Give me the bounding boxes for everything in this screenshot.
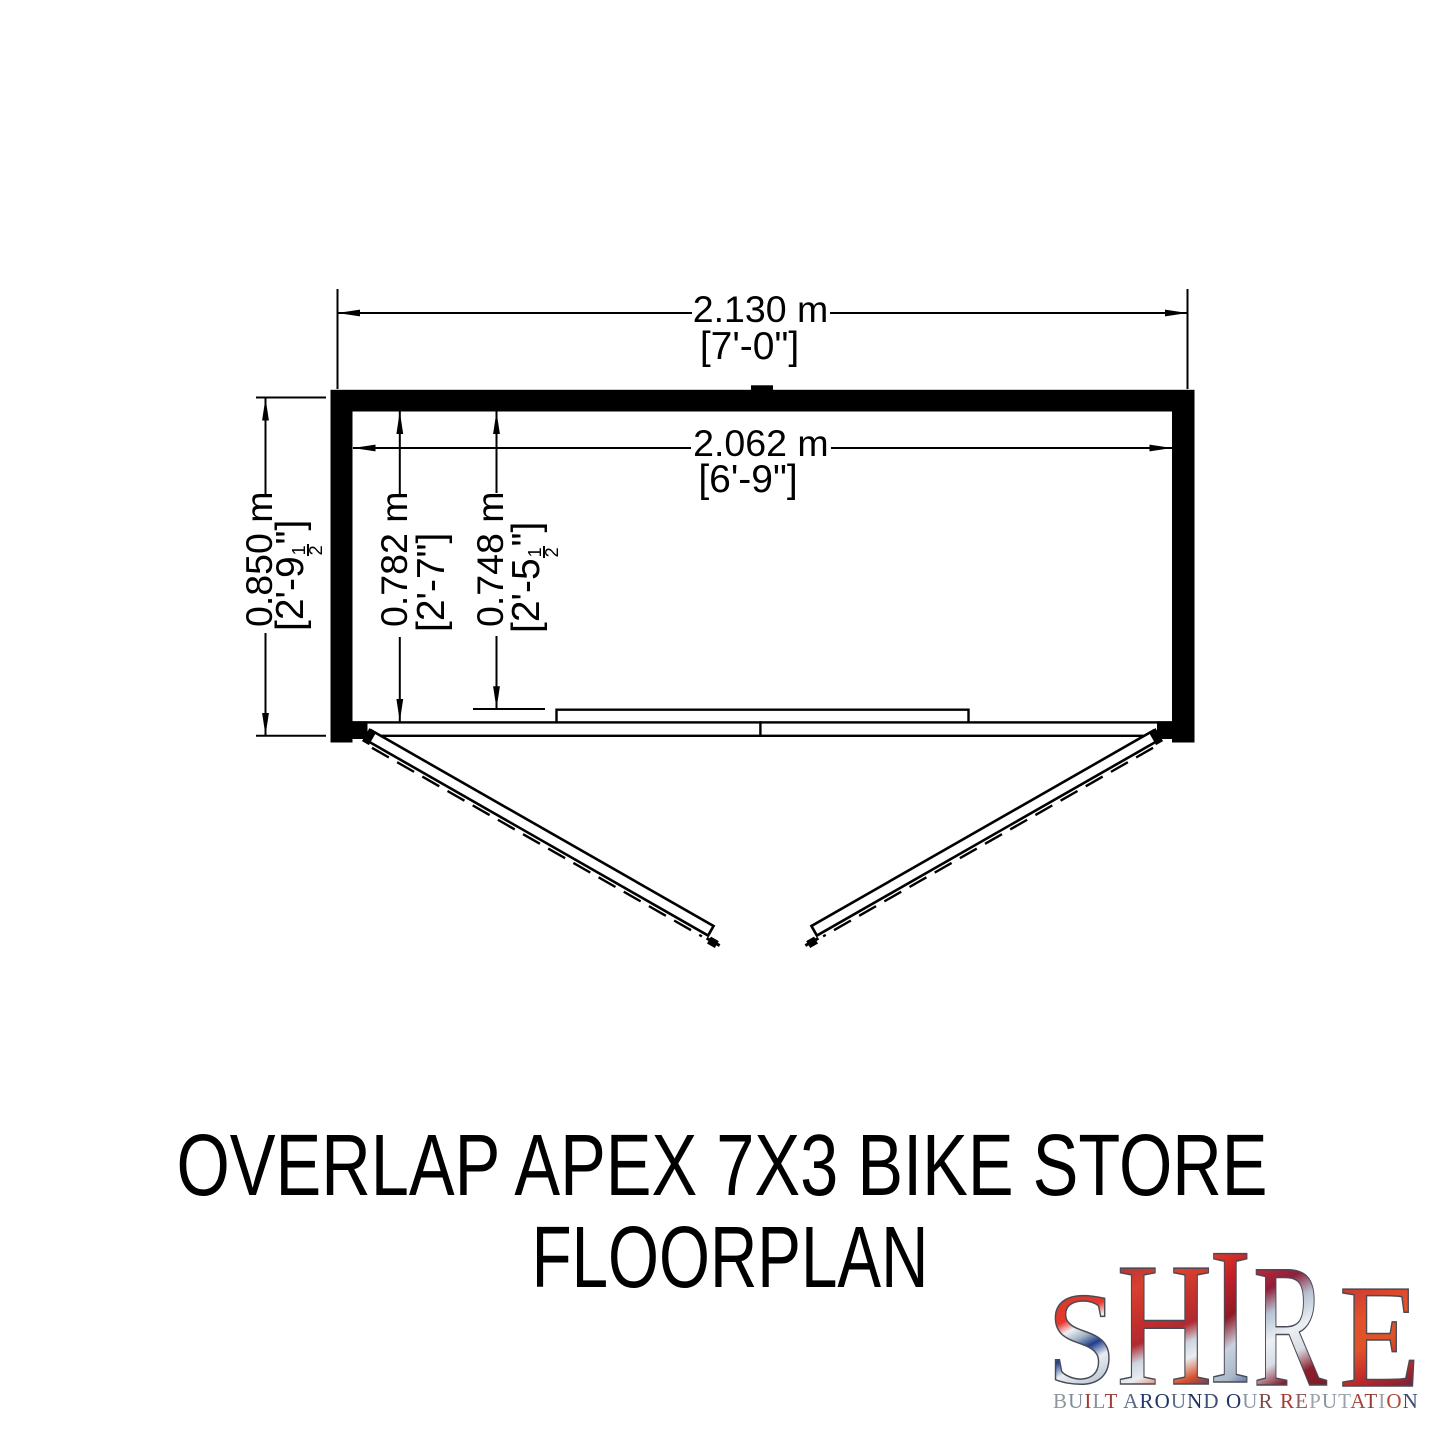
svg-text:BUILT AROUND OUR REPUTATION: BUILT AROUND OUR REPUTATION (1053, 1389, 1419, 1413)
